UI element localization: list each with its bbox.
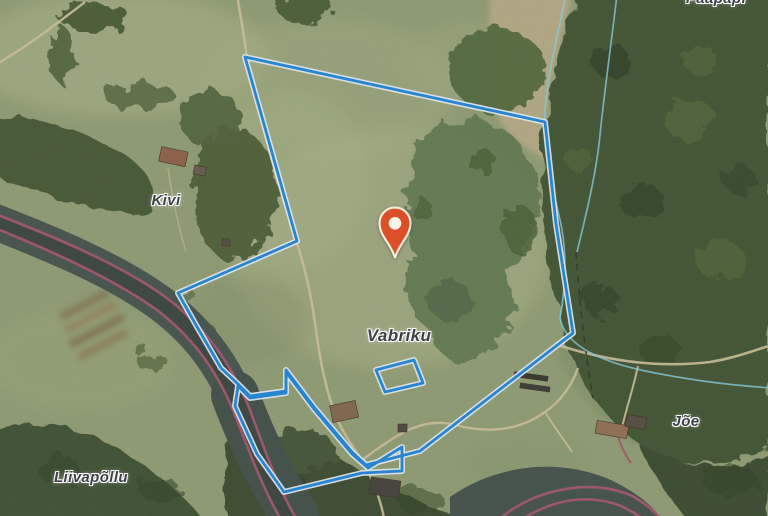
map-viewport[interactable]: Paapapi Kivi Vabriku Jõe Liivapõllu [0, 0, 768, 516]
satellite-imagery [0, 0, 768, 516]
photo-grain [0, 0, 768, 516]
pin-hole [389, 217, 402, 230]
